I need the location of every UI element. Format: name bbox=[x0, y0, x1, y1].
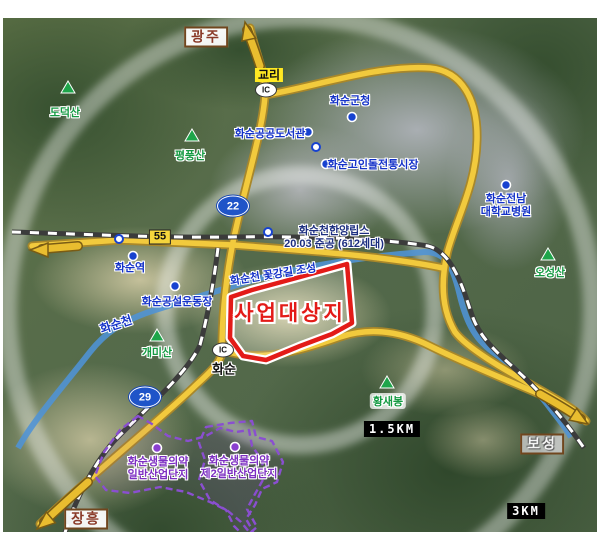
distance-label-inner: 1.5KM bbox=[364, 421, 420, 437]
map-screenshot: 광주 장흥 보성 교리 IC IC 화순 22 29 55 화순군청 화순공공도… bbox=[0, 0, 600, 556]
ic-label-gyori: 교리 bbox=[255, 68, 283, 82]
project-site-label: 사업대상지 bbox=[234, 297, 346, 327]
mountain-dodeoksan: 도덕산 bbox=[50, 104, 80, 120]
poi-hospital: 화순전남 대학교병원 bbox=[481, 193, 532, 219]
poi-library: 화순공공도서관 bbox=[235, 125, 306, 141]
map-vector-overlay bbox=[0, 0, 600, 556]
apartment-name: 화순천한양립스 bbox=[284, 225, 384, 238]
industrial-complex-2-line1: 화순생물의약 bbox=[201, 455, 278, 468]
apartment-status: 20.03 준공 (612세대) bbox=[284, 238, 384, 251]
industrial-complex-1-label: 화순생물의약 일반산업단지 bbox=[128, 456, 189, 482]
mountain-pyeongpungsan: 평풍산 bbox=[175, 147, 205, 163]
city-label-boseong: 보성 bbox=[520, 434, 564, 455]
mountain-hwangsaebong: 황새봉 bbox=[370, 393, 406, 409]
distance-label-outer: 3KM bbox=[507, 503, 545, 519]
poi-county-office: 화순군청 bbox=[330, 92, 370, 108]
ic-badge-hwasun: IC bbox=[212, 343, 234, 358]
city-label-gwangju: 광주 bbox=[184, 27, 228, 48]
poi-stadium: 화순공설운동장 bbox=[142, 293, 213, 309]
industrial-complex-2-line2: 제2일반산업단지 bbox=[201, 468, 278, 481]
industrial-complex-1-line2: 일반산업단지 bbox=[128, 469, 189, 482]
ic-label-hwasun: 화순 bbox=[212, 359, 236, 378]
route-badge-55: 55 bbox=[149, 230, 171, 245]
poi-hospital-line1: 화순전남 bbox=[481, 193, 532, 206]
poi-station: 화순역 bbox=[115, 259, 145, 275]
route-badge-22: 22 bbox=[217, 196, 249, 217]
mountain-oseongsan: 오성산 bbox=[535, 264, 565, 280]
industrial-complex-2-label: 화순생물의약 제2일반산업단지 bbox=[201, 455, 278, 481]
mountain-gaemisan: 개미산 bbox=[142, 344, 172, 360]
ic-badge-gyori: IC bbox=[255, 83, 277, 98]
route-badge-29: 29 bbox=[129, 387, 161, 408]
city-label-jangheung: 장흥 bbox=[64, 509, 108, 530]
poi-hospital-line2: 대학교병원 bbox=[481, 206, 532, 219]
apartment-label: 화순천한양립스 20.03 준공 (612세대) bbox=[284, 225, 384, 251]
poi-market: 화순고인돌전통시장 bbox=[327, 156, 418, 172]
industrial-complex-1-line1: 화순생물의약 bbox=[128, 456, 189, 469]
